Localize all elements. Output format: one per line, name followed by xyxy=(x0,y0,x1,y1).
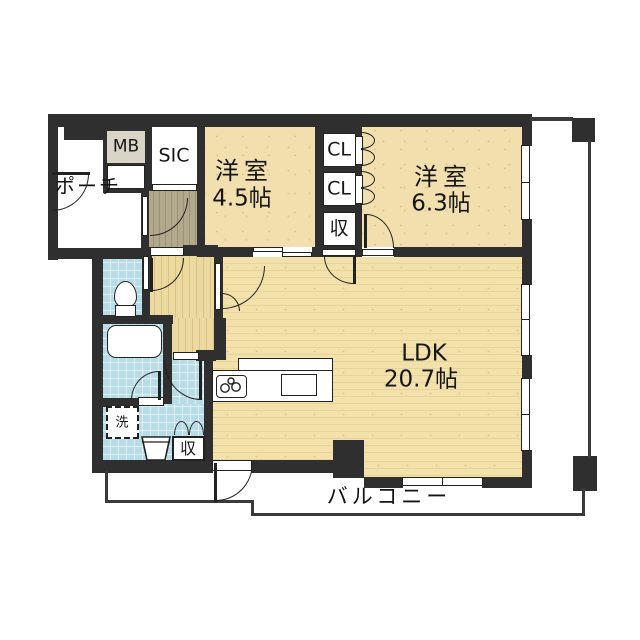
pillar-corner-top-right xyxy=(572,118,595,142)
room-6_3-size: 6.3帖 xyxy=(411,193,471,216)
stove-icon xyxy=(216,375,247,398)
porch-label: ポーチ xyxy=(55,176,121,196)
sic-threshold xyxy=(152,184,197,191)
wall-room45-left xyxy=(197,114,205,257)
front-door-opening xyxy=(142,196,148,236)
ldk-door-leaf xyxy=(215,263,221,310)
outline-right xyxy=(588,140,591,458)
wall-top xyxy=(48,114,532,127)
closet-2-label: CL xyxy=(327,180,351,199)
wall-kitchen-front xyxy=(251,460,333,473)
closet-1-label: CL xyxy=(327,141,351,160)
sink-icon xyxy=(281,374,317,396)
hall-storage-label: 収 xyxy=(329,220,348,239)
window-room63-a xyxy=(521,145,530,183)
balcony-door-arc xyxy=(216,463,253,501)
wall-right-seg3 xyxy=(522,355,532,379)
room45-slide-door-a xyxy=(253,247,283,252)
toilet-icon xyxy=(114,281,137,308)
window-ldk-right-a xyxy=(521,284,530,320)
wall-room63-bottom xyxy=(394,247,532,257)
entry-hall-threshold xyxy=(150,247,184,256)
outline-balcony-left xyxy=(105,471,108,503)
room45-slide-door-b xyxy=(282,252,312,257)
toilet-door-opening xyxy=(143,256,149,290)
room-6_3-name: 洋室 xyxy=(414,165,472,189)
window-ldk-right-b xyxy=(521,319,530,356)
washroom-door-leaf xyxy=(199,360,202,400)
toilet-door-leaf xyxy=(150,258,153,292)
ldk-size: 20.7帖 xyxy=(384,369,458,392)
window-room63-b xyxy=(521,182,530,220)
room63-door-threshold xyxy=(362,249,394,256)
pillar-corner-bottom-right xyxy=(573,456,597,491)
meter-box-label: MB xyxy=(113,139,139,156)
wall-room45-bottom xyxy=(197,247,253,257)
shoes-closet-label: SIC xyxy=(159,147,190,166)
bath-door-leaf xyxy=(158,371,161,400)
outline-balcony-right xyxy=(582,488,585,516)
washroom-door-threshold xyxy=(173,352,199,360)
wall-right-seg2 xyxy=(522,219,532,285)
washer-label: 洗 xyxy=(115,417,128,430)
room63-door-leaf xyxy=(364,214,367,248)
outline-balcony-bottom-left xyxy=(105,500,254,503)
balcony-door-leaf xyxy=(214,463,217,502)
floor-plan: ポーチ MB SIC 洋室 4.5帖 CL CL 収 洋室 6.3帖 LDK 2… xyxy=(0,0,640,640)
toilet-tank-icon xyxy=(115,305,136,317)
wall-ldk-bottom-right xyxy=(482,477,532,488)
wall-left-lower xyxy=(92,252,103,473)
wash-storage-label: 収 xyxy=(180,441,196,457)
window-ldk-right-c xyxy=(521,378,530,415)
pillar-ldk xyxy=(333,440,364,478)
wall-sic-left xyxy=(145,127,152,191)
outline-top-right xyxy=(530,117,573,121)
hall-storage-door-threshold xyxy=(322,249,356,256)
outline-balcony-bottom xyxy=(251,513,585,516)
window-ldk-right-d xyxy=(521,414,530,451)
washbasin-icon xyxy=(140,435,172,462)
room-4_5-size: 4.5帖 xyxy=(212,188,272,211)
room-4_5-name: 洋室 xyxy=(215,159,273,183)
ldk-name: LDK xyxy=(401,343,447,366)
wall-top-block xyxy=(64,127,107,140)
ldk-floor-bottom xyxy=(364,455,522,478)
hall-storage-door-leaf xyxy=(353,256,356,284)
balcony-label: バルコニー xyxy=(327,487,452,508)
bathtub-icon xyxy=(107,325,162,358)
